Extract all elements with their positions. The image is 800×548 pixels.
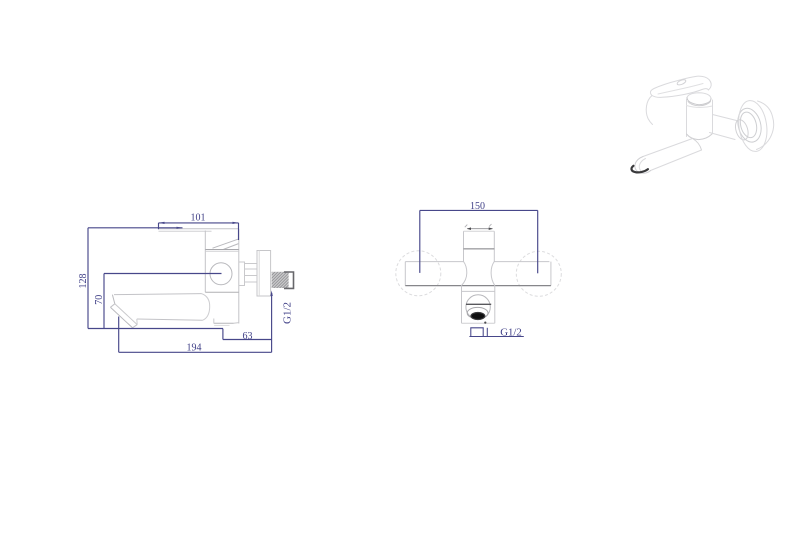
svg-text:G1/2: G1/2 [282,302,294,324]
svg-text:101: 101 [191,213,206,224]
svg-text:128: 128 [78,274,89,289]
svg-text:70: 70 [94,295,105,305]
svg-text:150: 150 [470,201,485,212]
svg-text:63: 63 [243,331,253,342]
svg-text:194: 194 [187,343,202,354]
svg-text:G1/2: G1/2 [500,326,522,338]
